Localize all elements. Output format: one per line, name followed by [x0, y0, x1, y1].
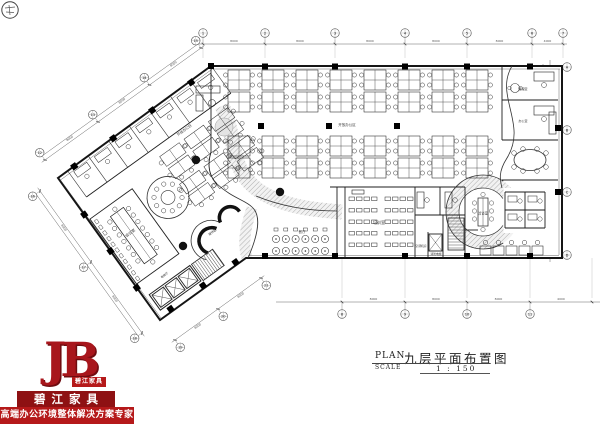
workstation-cluster	[292, 70, 323, 90]
scale-label: SCALE	[375, 364, 401, 371]
grid-bubble: 2	[261, 29, 270, 38]
dimension-value: 8000	[118, 97, 127, 105]
dimension-value: 8000	[169, 60, 178, 68]
workstation-cluster	[224, 136, 255, 156]
dimension-value: 8000	[193, 322, 202, 330]
plant	[192, 156, 200, 164]
grid-bubble: 9	[401, 310, 410, 319]
workstation-cluster	[462, 70, 493, 90]
dimension-value: 8000	[432, 297, 440, 301]
dimension-value: 8000	[65, 134, 74, 142]
grid-bubble-label: D	[566, 253, 569, 257]
workstation-cluster	[292, 158, 323, 178]
dimension-value: 8000	[230, 39, 238, 43]
workstation-cluster	[360, 92, 391, 112]
grid-bubble: 20	[219, 312, 228, 321]
grid-bubble-label: 14	[142, 76, 147, 80]
workstation-cluster	[258, 92, 289, 112]
dimension-value: 8000	[111, 294, 119, 303]
workstation-cluster	[326, 136, 357, 156]
workstation-cluster	[326, 92, 357, 112]
grid-bubble-label: 5	[466, 31, 468, 35]
grid-bubble-label: 12	[37, 151, 42, 155]
grid-bubble-label: 3	[334, 31, 336, 35]
scale-rule	[420, 373, 490, 374]
grid-bubble: A	[563, 63, 572, 72]
room-label: 培训室	[373, 219, 385, 225]
grid-bubble: 21	[262, 281, 271, 290]
grid-bubble: 11	[526, 310, 535, 319]
workstation-cluster	[394, 158, 425, 178]
grid-bubble-label: 7	[562, 31, 564, 35]
grid-bubble: 4	[401, 29, 410, 38]
room-label: 洽谈室	[478, 211, 488, 216]
workstation-cluster	[462, 158, 493, 178]
grid-bubble-label: 16	[30, 195, 35, 199]
workstation-cluster	[394, 70, 425, 90]
workstation-cluster	[394, 92, 425, 112]
floor-plan-sheet: 1234567800080008000800080004000ABCD80008…	[0, 0, 600, 424]
plan-label: PLAN	[375, 351, 405, 361]
grid-bubble-label: 19	[178, 346, 183, 350]
workstation-cluster	[428, 136, 459, 156]
grid-bubble: 7	[559, 29, 568, 38]
dimension-value: 8000	[60, 223, 68, 232]
grid-bubble-label: 11	[528, 312, 533, 316]
dimension-value: 8000	[236, 291, 245, 299]
grid-bubble: 19	[176, 343, 185, 352]
dimension-value: 8000	[370, 297, 378, 301]
grid-bubble: 13	[88, 110, 97, 119]
workstation-cluster	[462, 92, 493, 112]
plant	[276, 188, 284, 196]
workstation-cluster	[258, 158, 289, 178]
dimension-value: 8000	[366, 39, 374, 43]
grid-bubble: 5	[463, 29, 472, 38]
grid-bubble: 8	[338, 310, 347, 319]
grid-bubble: D	[563, 251, 572, 260]
workstation-cluster	[428, 70, 459, 90]
grid-bubble: 6	[528, 29, 537, 38]
dimension-value: 4000	[557, 297, 565, 301]
stamp-seal-icon	[0, 0, 20, 20]
workstation-cluster	[428, 158, 459, 178]
scale-value: 1 : 150	[436, 364, 476, 373]
grid-bubble-label: 10	[465, 312, 470, 316]
grid-bubble-label: 15	[193, 39, 198, 43]
workstation-cluster	[360, 70, 391, 90]
dimension-value: 4000	[544, 39, 552, 43]
workstation-cluster	[292, 92, 323, 112]
grid-bubble: 17	[79, 263, 88, 272]
room-label: 空调机房	[415, 244, 426, 248]
dimension-value: 8000	[296, 39, 304, 43]
title-rule	[372, 363, 490, 364]
grid-bubble-label: 17	[81, 266, 86, 270]
grid-bubble: 16	[28, 192, 37, 201]
logo-tagline: 高端办公环境整体解决方案专家	[0, 407, 134, 424]
grid-bubble: B	[563, 126, 572, 135]
grid-bubble-label: 13	[91, 113, 96, 117]
grid-bubble-label: 21	[264, 284, 269, 288]
logo-badge: 碧江家具	[72, 377, 106, 387]
grid-bubble: 1	[199, 29, 208, 38]
grid-bubble-label: 18	[132, 337, 137, 341]
workstation-cluster	[428, 92, 459, 112]
grid-bubble-label: 2	[264, 31, 266, 35]
plant	[179, 242, 187, 250]
workstation-cluster	[394, 136, 425, 156]
grid-bubble: 18	[130, 334, 139, 343]
workstation-cluster	[292, 136, 323, 156]
room-label: 餐厅	[299, 229, 307, 234]
workstation-cluster	[360, 136, 391, 156]
dimension-value: 8000	[496, 39, 504, 43]
workstation-cluster	[258, 70, 289, 90]
logo-company-name: 碧江家具	[17, 391, 115, 407]
grid-bubble: 12	[35, 148, 44, 157]
room-label: 消防电梯	[430, 252, 441, 256]
workstation-cluster	[224, 70, 255, 90]
grid-bubble-label: 20	[221, 315, 226, 319]
workstation-cluster	[360, 158, 391, 178]
room-label: 经理室	[518, 86, 527, 91]
grid-bubble: 15	[191, 36, 200, 45]
grid-bubble-label: 1	[202, 31, 204, 35]
room-label: 开放办公区	[338, 122, 356, 127]
workstation-cluster	[462, 136, 493, 156]
workstation-cluster	[326, 158, 357, 178]
room-label: 办公室	[518, 118, 527, 123]
workstation-cluster	[326, 70, 357, 90]
grid-bubble: 14	[140, 73, 149, 82]
dimension-value: 8000	[432, 39, 440, 43]
dimension-value: 8000	[495, 297, 503, 301]
grid-bubble: 3	[331, 29, 340, 38]
grid-bubble: 10	[463, 310, 472, 319]
grid-bubble: C	[563, 188, 572, 197]
